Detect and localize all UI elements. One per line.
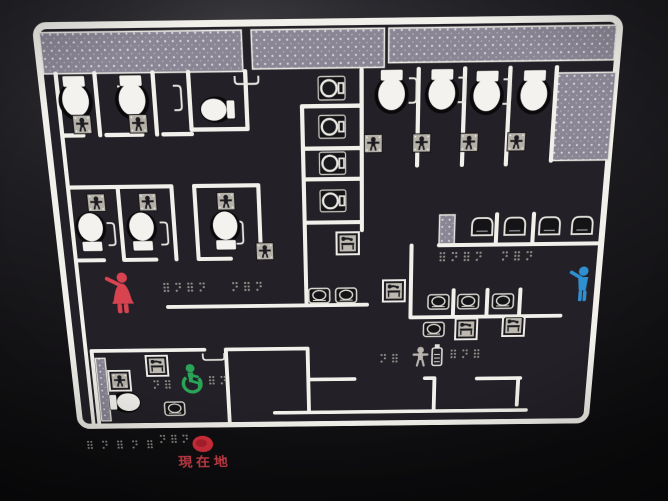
- baby-seat-icon: [413, 134, 431, 152]
- baby-seat-icon: [364, 134, 382, 152]
- diaper-station-icon: [455, 319, 477, 340]
- basin-icon: [309, 288, 330, 303]
- diaper-station-icon: [383, 280, 405, 301]
- squat-toilet-icon: [318, 76, 345, 100]
- basin-icon: [492, 294, 514, 309]
- photo-of-tactile-map: 現在地: [0, 0, 668, 501]
- urinal-icon: [472, 218, 493, 235]
- basin-icon: [164, 402, 185, 415]
- baby-seat-icon: [217, 192, 235, 210]
- basin-icon: [428, 295, 449, 310]
- squat-toilet-icon: [319, 152, 345, 175]
- baby-seat-icon: [460, 133, 479, 152]
- baby-seat-icon: [507, 133, 526, 152]
- urinal-icon: [504, 218, 525, 235]
- you-are-here-label: 現在地: [178, 454, 232, 470]
- hatch-pillar: [439, 215, 455, 245]
- urinal-icon: [571, 217, 593, 234]
- restroom-floor-plan: 現在地: [23, 9, 639, 501]
- diaper-station-icon: [502, 315, 525, 336]
- you-are-here-marker: 現在地: [176, 436, 231, 470]
- hatch-block-top-right: [551, 72, 616, 160]
- basin-icon: [423, 322, 444, 336]
- baby-seat-icon: [129, 114, 148, 133]
- basin-icon: [458, 294, 479, 309]
- baby-seat-icon: [72, 115, 92, 134]
- hatch-band-right: [389, 25, 617, 62]
- squat-toilet-icon: [320, 190, 346, 212]
- basin-icon: [336, 288, 357, 303]
- tactile-map-sign: 現在地: [23, 9, 639, 501]
- urinal-icon: [539, 217, 561, 234]
- hatch-band-center: [251, 28, 384, 69]
- hatch-band-left: [39, 30, 243, 74]
- baby-seat-icon: [138, 193, 157, 211]
- baby-seat-icon: [256, 243, 274, 260]
- squat-toilet-icon: [319, 115, 346, 138]
- diaper-station-icon: [336, 232, 358, 254]
- baby-seat-icon: [87, 194, 106, 212]
